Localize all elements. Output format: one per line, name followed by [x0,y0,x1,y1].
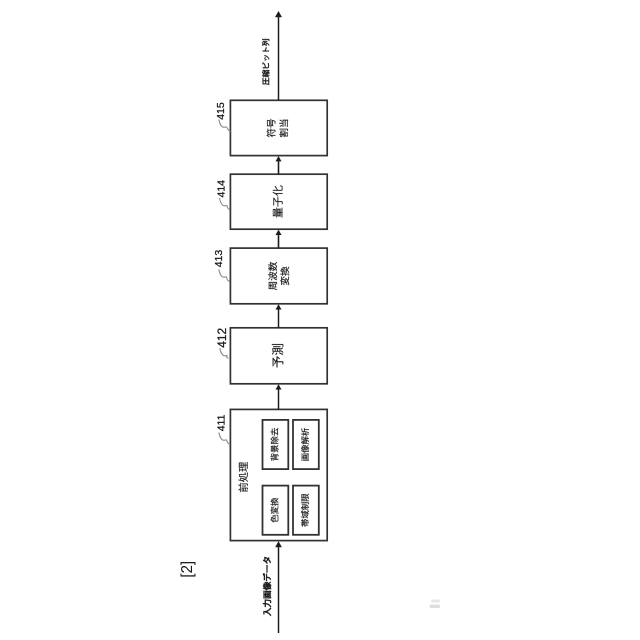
svg-text:412: 412 [215,327,229,347]
svg-text:413: 413 [213,250,225,268]
svg-text:[2]: [2] [179,561,196,578]
svg-text:414: 414 [215,180,227,198]
svg-text:411: 411 [215,414,227,431]
svg-text:415: 415 [215,102,227,120]
